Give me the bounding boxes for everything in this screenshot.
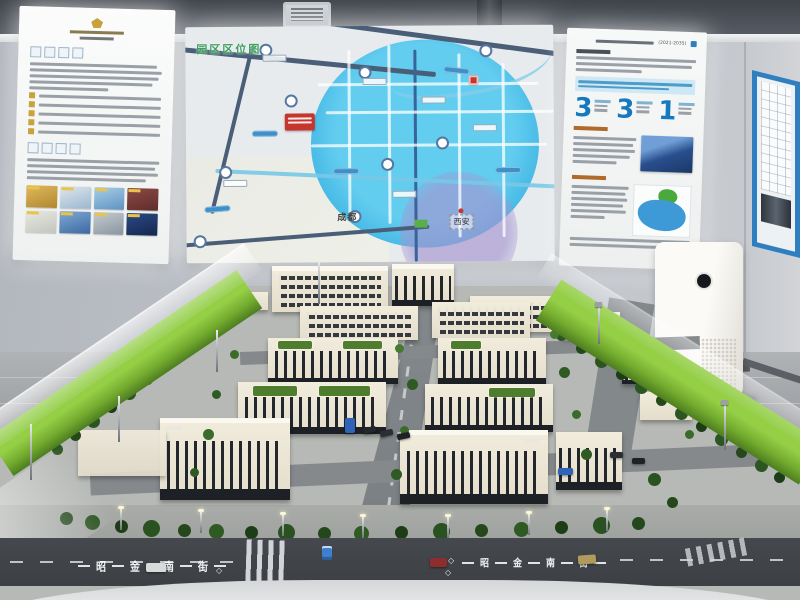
location-map-panel: 成都 西安 园区区位图 xyxy=(185,25,555,264)
stat-item: 3 xyxy=(616,97,653,122)
building-icon xyxy=(29,92,35,98)
paragraph-line xyxy=(29,86,108,91)
project-photo xyxy=(59,211,90,234)
plan-title-row: (2021-2035) xyxy=(577,37,697,47)
map-park-icon xyxy=(415,219,428,227)
marker-text-line xyxy=(288,118,312,120)
model-building-hall xyxy=(392,264,454,306)
model-car-parked xyxy=(632,458,645,464)
map-label xyxy=(392,191,416,198)
ceiling-vent-icon xyxy=(283,2,331,28)
model-car-red xyxy=(430,558,447,567)
project-photo xyxy=(126,213,157,236)
vent-louvers xyxy=(291,8,323,21)
map-label xyxy=(223,180,247,187)
industry-text xyxy=(572,133,636,168)
street-lamp xyxy=(447,516,449,538)
poster-photo-strip xyxy=(761,193,791,228)
stat-value: 1 xyxy=(658,99,677,124)
street-char: 昭 xyxy=(96,557,106,574)
project-photo-grid xyxy=(25,185,158,236)
layout-row xyxy=(570,182,692,238)
paragraph-line xyxy=(29,80,152,86)
roof xyxy=(400,430,548,435)
model-building-wing xyxy=(556,432,622,490)
model-villa xyxy=(300,306,418,340)
project-photo xyxy=(93,212,124,235)
railing-clamp xyxy=(721,400,728,405)
building-icon xyxy=(29,110,35,116)
roof xyxy=(160,418,290,423)
model-building-left-edge xyxy=(78,430,166,476)
railing-post xyxy=(724,402,726,450)
model-villa xyxy=(438,338,546,384)
model-building-front-left xyxy=(160,418,290,500)
section-heading xyxy=(576,49,610,54)
logo-text-line xyxy=(70,30,124,35)
roof-garden xyxy=(253,386,297,396)
street-char: 昭 xyxy=(480,555,489,570)
section-heading-industry xyxy=(574,126,608,131)
section-heading-2 xyxy=(27,142,159,157)
paragraph-line xyxy=(576,68,642,73)
lane-diamond-marking: ◇ xyxy=(216,566,222,575)
section-heading-layout xyxy=(572,175,606,180)
honor-list-item xyxy=(28,128,160,138)
industry-aerial-photo xyxy=(640,135,693,173)
model-building-front-right xyxy=(400,430,548,504)
street-lamp xyxy=(606,509,608,531)
stat-caption xyxy=(594,97,610,112)
plan-title-line xyxy=(596,39,654,44)
railing-post xyxy=(118,396,120,442)
side-wall-poster xyxy=(752,70,800,258)
industry-row xyxy=(572,133,693,173)
project-location-marker xyxy=(285,114,315,131)
street-lamp xyxy=(362,516,364,538)
roof xyxy=(272,266,388,271)
left-info-panel xyxy=(12,6,175,264)
building-icon xyxy=(29,101,35,107)
map-interchange-icon xyxy=(194,235,207,248)
model-car-blue xyxy=(558,468,573,475)
project-photo xyxy=(25,210,56,233)
honor-list-item xyxy=(29,92,161,102)
building-icon xyxy=(28,119,34,125)
stats-row: 3 3 1 xyxy=(574,96,695,124)
power-dial-icon xyxy=(697,274,711,288)
model-villa xyxy=(425,384,553,432)
building-nameplate xyxy=(166,426,182,430)
paragraph-line xyxy=(27,176,146,182)
roof-garden xyxy=(451,341,481,349)
project-photo xyxy=(60,186,91,209)
stat-value: 3 xyxy=(616,97,635,122)
highlight-line xyxy=(578,85,669,91)
crosswalk xyxy=(245,539,285,584)
marker-text-line xyxy=(288,122,312,124)
mini-map-blue-zone xyxy=(638,199,686,232)
railing-post xyxy=(30,424,32,480)
showroom-photo: 成都 西安 园区区位图 (2021-2035) 3 3 xyxy=(0,0,800,600)
model-car-parked xyxy=(610,452,623,458)
roof-garden xyxy=(278,341,312,349)
company-logo-icon xyxy=(91,18,103,28)
map-road-name-pill xyxy=(333,168,359,174)
model-villa xyxy=(432,302,530,338)
plan-logo-icon xyxy=(691,41,697,47)
wall-corner xyxy=(744,42,746,372)
lane-diamond-marking: ◇ xyxy=(445,568,451,577)
stat-value: 3 xyxy=(574,96,593,121)
honor-list-item xyxy=(29,110,161,120)
stat-item: 3 xyxy=(574,96,611,121)
stat-caption xyxy=(678,100,694,115)
honor-list-item xyxy=(28,119,160,129)
railing-post xyxy=(598,304,600,344)
stat-caption xyxy=(636,98,652,113)
logo-subtext-line xyxy=(80,37,114,41)
map-road-name-pill xyxy=(252,130,278,136)
section-heading-1 xyxy=(30,46,162,61)
railing-post xyxy=(216,330,218,372)
map-road-name-pill xyxy=(495,167,521,173)
street-lamp xyxy=(282,514,284,536)
street-char: 金 xyxy=(130,557,140,574)
lane-diamond-marking: ◇ xyxy=(448,556,454,565)
project-photo xyxy=(93,187,124,210)
railing-clamp xyxy=(595,302,602,307)
map-label xyxy=(421,96,445,103)
railing-post xyxy=(318,262,320,304)
right-info-panel: (2021-2035) 3 3 1 xyxy=(559,28,707,271)
map-city-label-chengdu: 成都 xyxy=(337,210,357,223)
map-label xyxy=(473,124,497,131)
project-photo xyxy=(127,188,158,211)
street-lamp xyxy=(528,513,530,535)
stat-item: 1 xyxy=(658,99,695,124)
map-city-label-xian: 西安 xyxy=(450,214,474,229)
map-interchange-icon xyxy=(285,95,298,108)
trees-scattered xyxy=(230,350,239,359)
roof-garden xyxy=(319,386,369,396)
model-car-tan xyxy=(578,554,597,564)
street-char: 街 xyxy=(198,557,208,574)
highlight-band xyxy=(575,76,695,95)
roof xyxy=(392,264,454,269)
street-lamp xyxy=(200,511,202,533)
building-nameplate xyxy=(524,439,540,443)
plan-period: (2021-2035) xyxy=(658,40,686,46)
poster-floorplan xyxy=(761,81,791,196)
layout-text xyxy=(570,182,628,223)
model-car-blue-van xyxy=(345,418,355,433)
map-label xyxy=(263,55,287,62)
roof-garden xyxy=(489,388,535,397)
building-icon xyxy=(28,128,34,134)
roof-garden xyxy=(343,341,382,349)
map-title: 园区区位图 xyxy=(196,41,261,57)
map-label xyxy=(362,78,386,85)
project-photo xyxy=(26,185,57,208)
street-char: 南 xyxy=(546,555,555,570)
honor-list-item xyxy=(29,101,161,111)
map-landmark-marker xyxy=(469,75,479,85)
street-char: 金 xyxy=(513,555,522,570)
model-car-white xyxy=(146,563,166,572)
bus-stop-icon xyxy=(322,546,332,560)
street-lamp xyxy=(120,508,122,530)
model-villa xyxy=(268,338,398,384)
layout-mini-map xyxy=(632,184,692,238)
